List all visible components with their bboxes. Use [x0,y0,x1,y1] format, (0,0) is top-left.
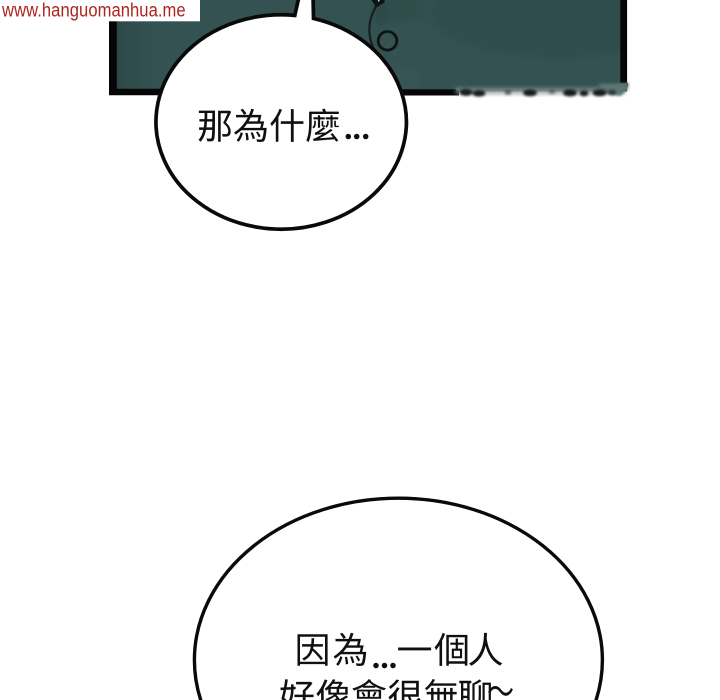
svg-text:www.hanguomanhua.me: www.hanguomanhua.me [1,0,186,21]
